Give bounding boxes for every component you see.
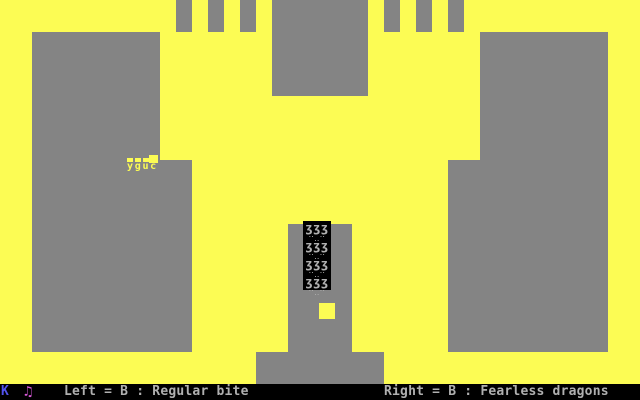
battlement-left-1: [176, 0, 192, 32]
player-dragon-legs: yguc: [127, 162, 158, 172]
music-note-icon: ♫: [24, 384, 33, 400]
battlement-left-3: [240, 0, 256, 32]
battlement-left-2: [208, 0, 224, 32]
exit-hole: [319, 303, 335, 319]
battlement-right-2: [416, 0, 432, 32]
game-screen: ʒʒʒ ‥ ‥ ‥ ʒʒʒ ‥ ‥ ‥ ʒʒʒ ‥ ‥ ‥ ʒʒʒ ‥ ‥ ‥ …: [0, 0, 640, 400]
playfield: ʒʒʒ ‥ ‥ ‥ ʒʒʒ ‥ ‥ ‥ ʒʒʒ ‥ ‥ ‥ ʒʒʒ ‥ ‥ ‥ …: [0, 0, 640, 384]
right-control-hint: Right = B : Fearless dragons: [384, 384, 609, 400]
dragon-cage: ʒʒʒ ‥ ‥ ‥ ʒʒʒ ‥ ‥ ‥ ʒʒʒ ‥ ‥ ‥ ʒʒʒ ‥ ‥ ‥: [303, 221, 331, 290]
left-wall: [32, 32, 160, 352]
right-wall-extension: [448, 160, 480, 352]
battlement-right-3: [448, 0, 464, 32]
top-center-block: [272, 0, 368, 96]
key-indicator: K: [1, 384, 9, 400]
left-control-hint: Left = B : Regular bite: [64, 384, 249, 400]
center-base: [256, 352, 384, 384]
right-wall: [480, 32, 608, 352]
player-dragon: yguc: [127, 155, 161, 173]
caged-dragon-row: ʒʒʒ ‥ ‥ ‥: [303, 277, 331, 295]
left-wall-extension: [160, 160, 192, 352]
status-bar: K ♫ Left = B : Regular bite Right = B : …: [0, 384, 640, 400]
battlement-right-1: [384, 0, 400, 32]
